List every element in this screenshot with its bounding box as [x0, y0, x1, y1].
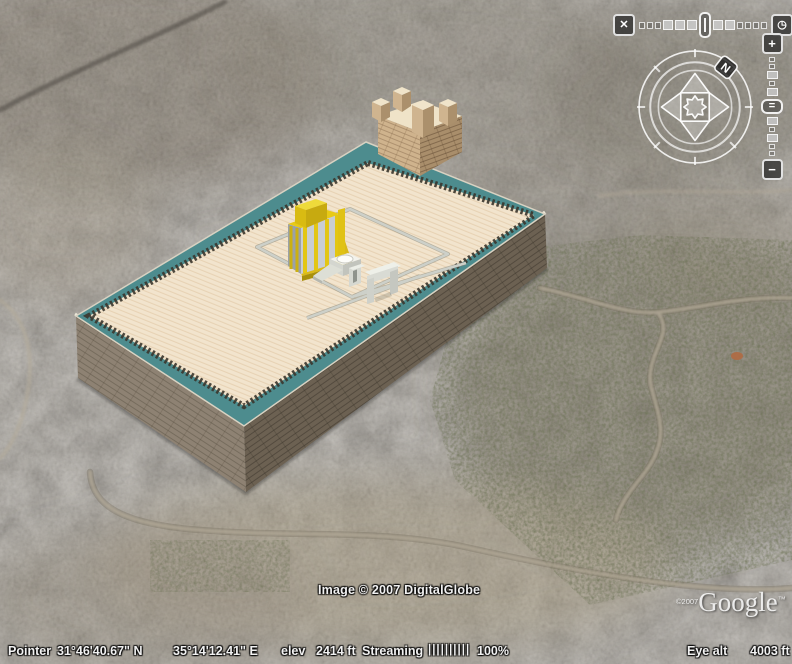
zoom-tick: [769, 57, 775, 62]
time-slider-handle[interactable]: [699, 12, 711, 38]
zoom-tick: [767, 134, 778, 142]
clock-icon: ◷: [777, 20, 787, 31]
zoom-tick: [767, 117, 778, 125]
north-indicator[interactable]: N: [713, 55, 738, 80]
time-tick: [753, 22, 759, 29]
zoom-tick: [767, 71, 778, 79]
time-tick: [737, 22, 743, 29]
pointer-label: Pointer: [8, 644, 51, 658]
pan-right-arrow[interactable]: [709, 93, 728, 121]
look-joystick[interactable]: [684, 96, 706, 118]
zoom-tick: [769, 144, 775, 149]
pointer-latitude: 31°46'40.67" N: [57, 644, 143, 658]
google-logo: ©2007 Google ™: [676, 591, 786, 616]
imagery-credit: Image © 2007 DigitalGlobe: [318, 583, 480, 597]
zoom-tick: [769, 81, 775, 86]
zoom-tick: [767, 88, 778, 96]
streaming-progress-bars: ||||||||||: [428, 644, 470, 656]
pointer-longitude: 35°14'12.41" E: [173, 644, 258, 658]
time-slider-track[interactable]: [638, 12, 768, 38]
logo-wordmark: Google: [698, 589, 777, 616]
zoom-slider-track[interactable]: =: [761, 56, 783, 157]
time-range-button[interactable]: ✕: [613, 14, 635, 36]
time-tick: [675, 20, 685, 30]
time-tick: [761, 22, 767, 29]
time-tick: [725, 20, 735, 30]
compass-navigator[interactable]: N: [636, 48, 754, 166]
elevation-label: elev: [281, 644, 305, 658]
pan-up-arrow[interactable]: [681, 73, 709, 92]
google-earth-viewport[interactable]: ✕ ◷ N +: [0, 0, 792, 664]
streaming-percent: 100%: [477, 644, 509, 658]
pan-down-arrow[interactable]: [681, 121, 709, 140]
status-bar: Pointer 31°46'40.67" N 35°14'12.41" E el…: [0, 644, 792, 664]
zoom-out-button[interactable]: −: [762, 159, 783, 180]
logo-trademark: ™: [778, 595, 786, 604]
time-tick: [713, 20, 723, 30]
zoom-tick: [769, 127, 775, 132]
zoom-tick: [769, 151, 775, 156]
zoom-slider[interactable]: + = −: [759, 33, 785, 180]
fortress-tower: [439, 99, 457, 126]
pan-left-arrow[interactable]: [661, 93, 680, 121]
time-tick: [655, 22, 661, 29]
zoom-in-button[interactable]: +: [762, 33, 783, 54]
time-tick: [663, 20, 673, 30]
time-tick: [647, 22, 653, 29]
streaming-label: Streaming: [362, 644, 423, 658]
time-tick: [639, 22, 645, 29]
zoom-tick: [769, 64, 775, 69]
fortress-tower: [412, 100, 434, 138]
zoom-slider-handle[interactable]: =: [761, 99, 783, 114]
time-tick: [745, 22, 751, 29]
eye-altitude-label: Eye alt: [687, 644, 727, 658]
fortress-tower: [372, 98, 390, 122]
logo-copyright: ©2007: [676, 597, 698, 606]
elevation-value: 2414 ft: [316, 644, 356, 658]
time-range-icon: ✕: [619, 20, 628, 31]
eye-altitude-value: 4003 ft: [750, 644, 790, 658]
time-tick: [687, 20, 697, 30]
